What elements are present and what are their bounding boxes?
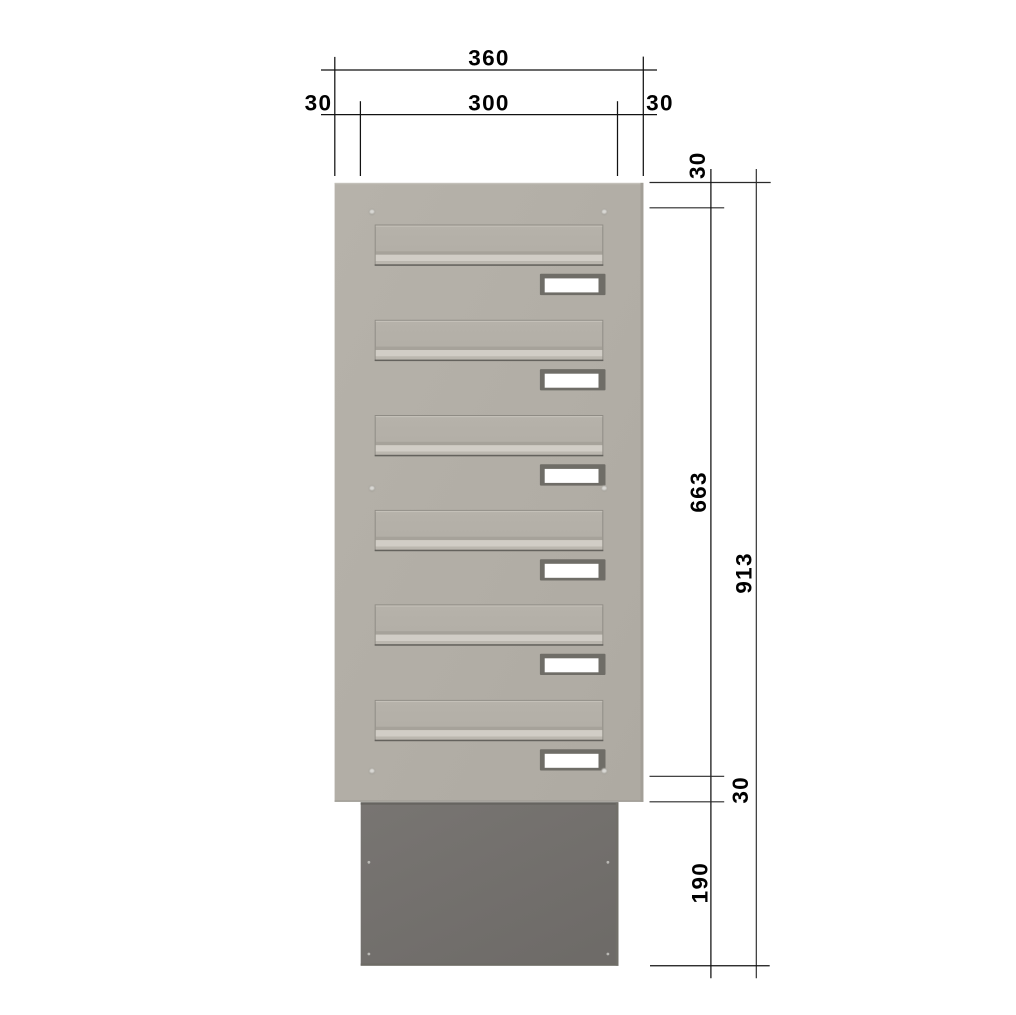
svg-text:30: 30 bbox=[305, 90, 333, 115]
svg-text:360: 360 bbox=[468, 46, 509, 71]
svg-text:913: 913 bbox=[732, 552, 757, 593]
svg-text:663: 663 bbox=[686, 471, 711, 512]
svg-text:30: 30 bbox=[685, 151, 710, 179]
svg-text:190: 190 bbox=[688, 862, 713, 903]
svg-text:300: 300 bbox=[468, 90, 509, 115]
svg-text:30: 30 bbox=[646, 90, 674, 115]
svg-text:30: 30 bbox=[728, 776, 753, 804]
